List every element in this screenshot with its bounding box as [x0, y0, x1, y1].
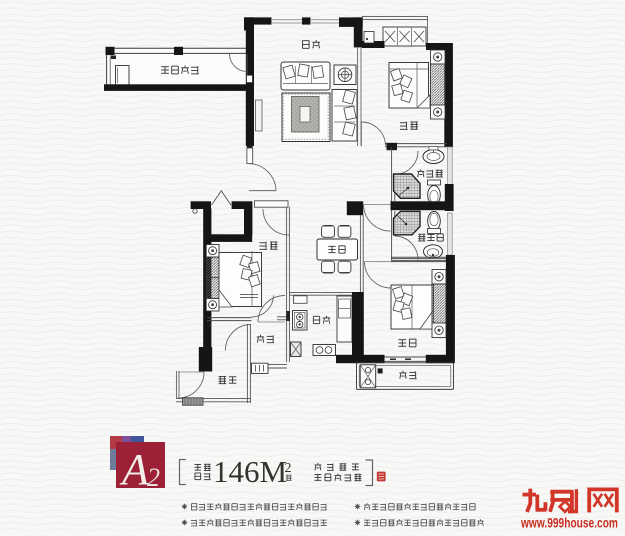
svg-text:146M: 146M	[213, 454, 287, 489]
svg-text:2: 2	[285, 461, 292, 476]
svg-text:www.999house.com: www.999house.com	[520, 516, 618, 531]
svg-text:2: 2	[147, 463, 160, 492]
svg-text:A: A	[119, 445, 150, 494]
